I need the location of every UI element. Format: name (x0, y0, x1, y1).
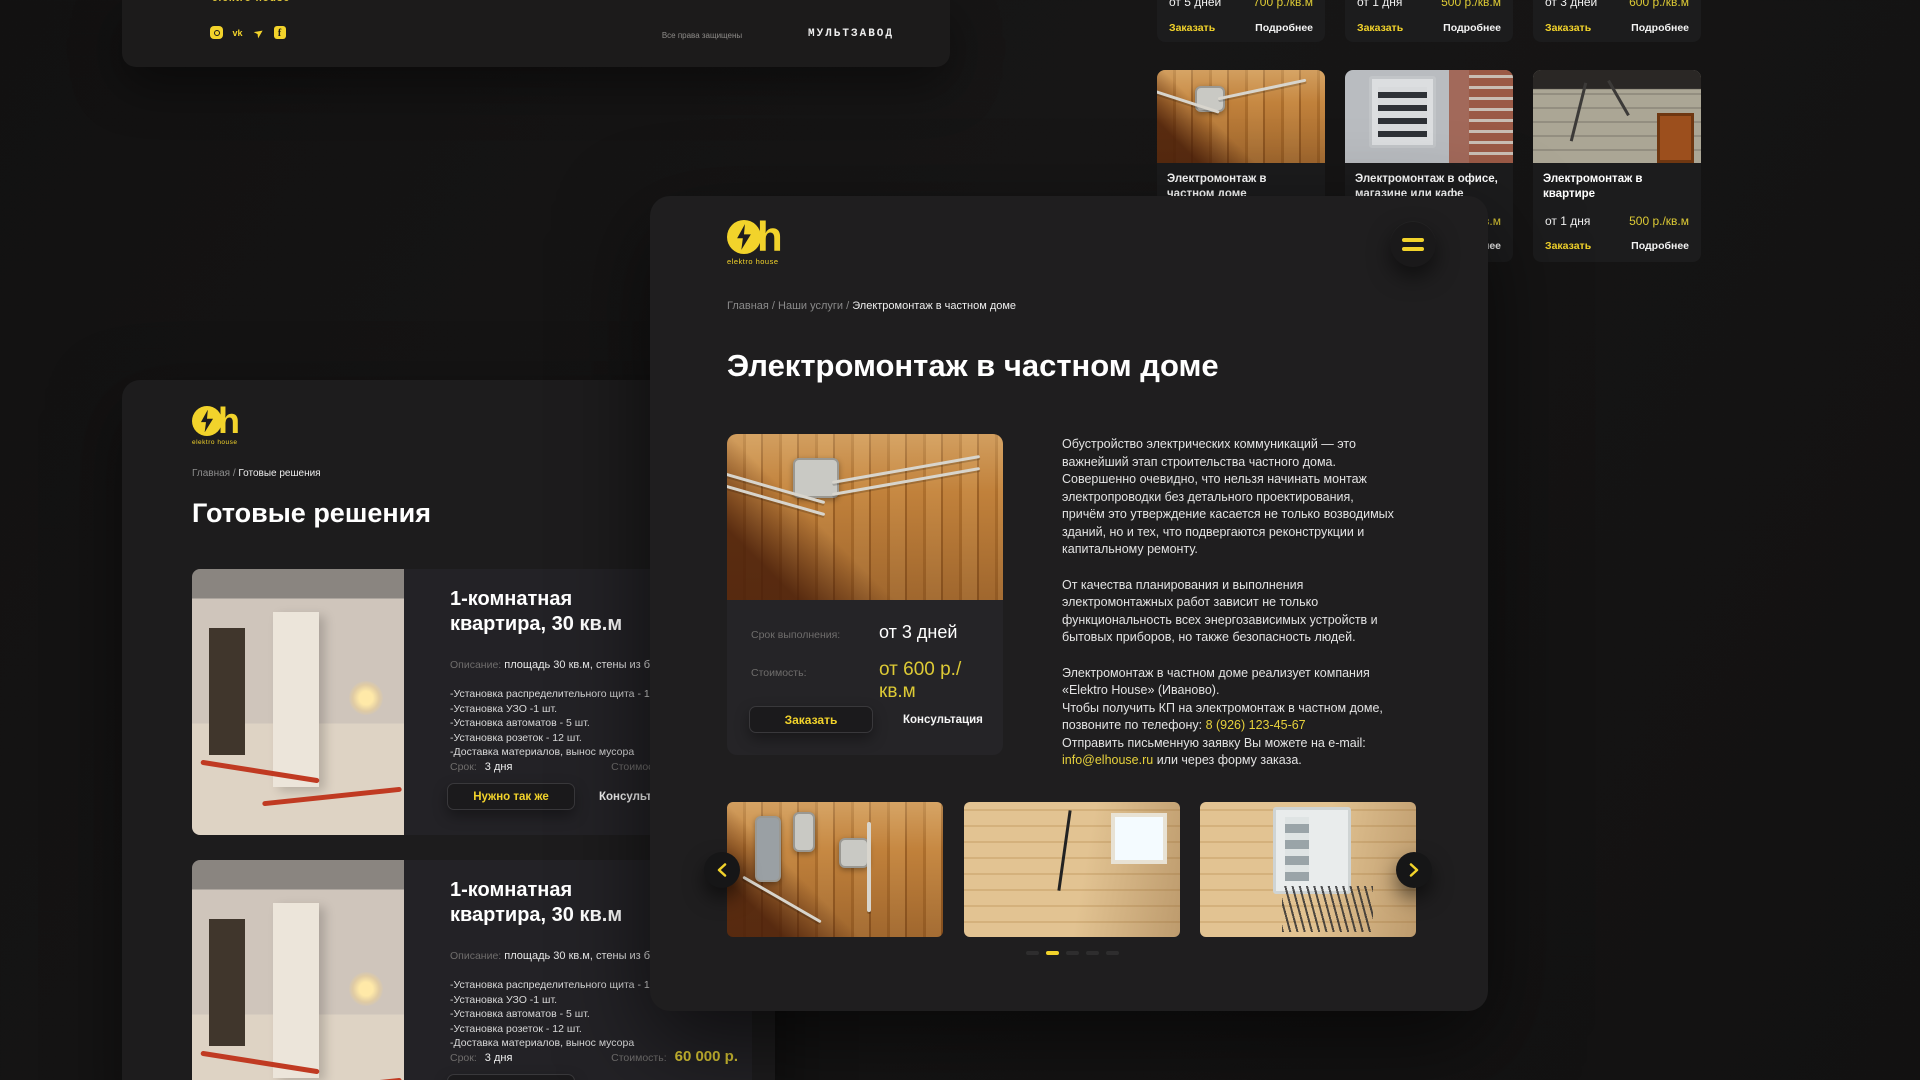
carousel-dot[interactable] (1066, 951, 1079, 955)
service-card: Электромонтаж в квартире от 1 дня 500 р.… (1533, 70, 1701, 262)
carousel-next-button[interactable] (1396, 852, 1432, 888)
footer-bar: elektro house vk ➤ f Все права защищены … (122, 0, 950, 67)
order-button[interactable]: Заказать (1169, 22, 1215, 34)
service-page-panel: h elektro house Главная / Наши услуги / … (650, 196, 1488, 1011)
service-detail-card: Срок выполнения: от 3 дней Стоимость: от… (727, 434, 1003, 755)
photo-apartment-wall-wiring (1533, 70, 1701, 163)
service-price: 500 р./кв.м (1441, 0, 1501, 9)
service-card-cut: от 1 дня 500 р./кв.м Заказать Подробнее (1345, 0, 1513, 42)
need-same-button[interactable]: Нужно так же (447, 783, 575, 810)
solution-title: 1-комнатная квартира, 30 кв.м (450, 878, 670, 928)
photo-apartment-renovation (192, 860, 404, 1080)
service-term: от 5 дней (1169, 0, 1221, 9)
service-card-cut: от 3 дней 600 р./кв.м Заказать Подробнее (1533, 0, 1701, 42)
instagram-icon[interactable] (210, 26, 223, 39)
carousel-dot[interactable] (1106, 951, 1119, 955)
service-term: от 3 дней (1545, 0, 1597, 9)
order-button[interactable]: Заказать (1357, 22, 1403, 34)
carousel-prev-button[interactable] (704, 852, 740, 888)
page-title: Готовые решения (192, 498, 431, 529)
service-description: Обустройство электрических коммуникаций … (1062, 436, 1398, 788)
photo-breaker-panel (1345, 70, 1513, 163)
footer-partial-logo: elektro house (212, 0, 352, 4)
term-label: Срок: (450, 1052, 477, 1064)
service-price: 600 р./кв.м (1629, 0, 1689, 9)
term-value: 3 дня (485, 761, 513, 773)
page-title: Электромонтаж в частном доме (727, 348, 1219, 384)
price-label: Стоимость: (751, 667, 806, 679)
paragraph: От качества планирования и выполнения эл… (1062, 577, 1398, 647)
more-button[interactable]: Подробнее (1631, 22, 1689, 34)
service-price: 500 р./кв.м (1629, 214, 1689, 228)
email-link[interactable]: info@elhouse.ru (1062, 753, 1153, 767)
breadcrumb: Главная / Наши услуги / Электромонтаж в … (727, 300, 1016, 312)
breadcrumb-current: Готовые решения (238, 468, 320, 479)
logo[interactable]: h elektro house (192, 406, 240, 446)
logo-bolt-icon (192, 406, 222, 436)
social-links: vk ➤ f (210, 26, 286, 39)
carousel-dot-active[interactable] (1046, 951, 1059, 955)
studio-logo[interactable]: МУЛЬТЗАВОД (808, 28, 894, 40)
service-card-cut: от 5 дней 700 р./кв.м Заказать Подробнее (1157, 0, 1325, 42)
breadcrumb-current: Электромонтаж в частном доме (852, 300, 1016, 312)
term-label: Срок: (450, 761, 477, 773)
logo-bolt-icon (727, 220, 761, 254)
carousel-dot[interactable] (1086, 951, 1099, 955)
logo[interactable]: h elektro house (727, 220, 783, 266)
solution-title: 1-комнатная квартира, 30 кв.м (450, 587, 670, 637)
breadcrumb: Главная / Готовые решения (192, 468, 321, 479)
price-value: 60 000 р. (675, 1048, 738, 1065)
telegram-icon[interactable]: ➤ (249, 23, 267, 41)
paragraph: Обустройство электрических коммуникаций … (1062, 436, 1398, 559)
need-same-button[interactable]: Нужно так же (447, 1074, 575, 1080)
breadcrumb-root[interactable]: Главная / Наши услуги / (727, 300, 852, 312)
order-button[interactable]: Заказать (1545, 240, 1591, 252)
logo-text: elektro house (727, 257, 779, 266)
facebook-icon[interactable]: f (273, 26, 286, 39)
term-value: от 3 дней (879, 622, 957, 643)
gallery-photo-room-corner[interactable] (964, 802, 1180, 937)
service-price: 700 р./кв.м (1253, 0, 1313, 9)
more-button[interactable]: Подробнее (1631, 240, 1689, 252)
phone-link[interactable]: 8 (926) 123-45-67 (1206, 718, 1306, 732)
desc-label: Описание: (450, 950, 501, 962)
breadcrumb-root[interactable]: Главная / (192, 468, 238, 479)
term-value: 3 дня (485, 1052, 513, 1064)
photo-apartment-renovation (192, 569, 404, 835)
service-card-title[interactable]: Электромонтаж в квартире (1533, 163, 1701, 201)
paragraph: Электромонтаж в частном доме реализует к… (1062, 665, 1398, 770)
order-button[interactable]: Заказать (1545, 22, 1591, 34)
carousel-dot[interactable] (1026, 951, 1039, 955)
logo-text: elektro house (192, 439, 238, 446)
carousel-dots (1026, 951, 1119, 955)
vk-icon[interactable]: vk (231, 26, 244, 39)
more-button[interactable]: Подробнее (1443, 22, 1501, 34)
photo-private-house-wiring-large (727, 434, 1003, 600)
order-button[interactable]: Заказать (749, 706, 873, 733)
desc-label: Описание: (450, 659, 501, 671)
photo-private-house-wiring (1157, 70, 1325, 163)
service-term: от 1 дня (1545, 214, 1590, 228)
consultation-button[interactable]: Консультация (903, 714, 983, 726)
gallery-photo-cabinet[interactable] (1200, 802, 1416, 937)
service-term: от 1 дня (1357, 0, 1402, 9)
gallery-photo-panel-wall[interactable] (727, 802, 943, 937)
term-label: Срок выполнения: (751, 629, 840, 641)
menu-button[interactable] (1390, 221, 1436, 267)
copyright-text: Все права защищены (562, 31, 842, 40)
more-button[interactable]: Подробнее (1255, 22, 1313, 34)
price-value: от 600 р./кв.м (879, 659, 987, 703)
price-label: Стоимость: (611, 1052, 666, 1064)
